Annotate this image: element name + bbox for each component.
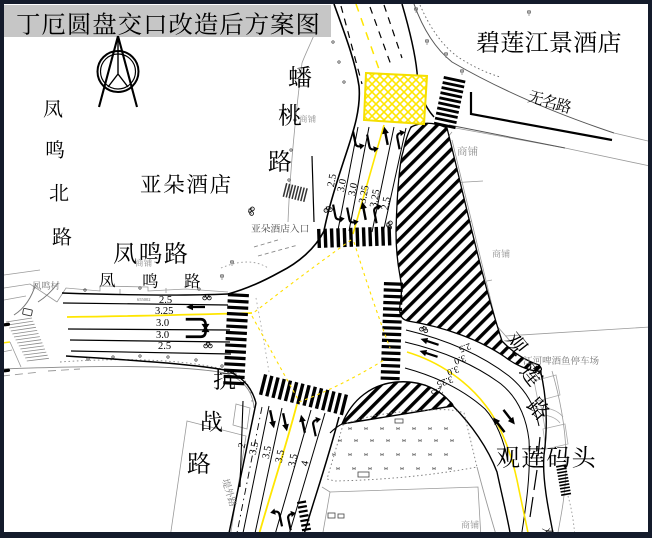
svg-text:2.5: 2.5 — [159, 295, 172, 306]
svg-text:2.5: 2.5 — [158, 341, 171, 352]
svg-text:3.25: 3.25 — [155, 306, 173, 317]
svg-text:3.0: 3.0 — [156, 318, 169, 329]
svg-text:655002: 655002 — [137, 297, 151, 302]
svg-text:3.0: 3.0 — [156, 330, 169, 341]
